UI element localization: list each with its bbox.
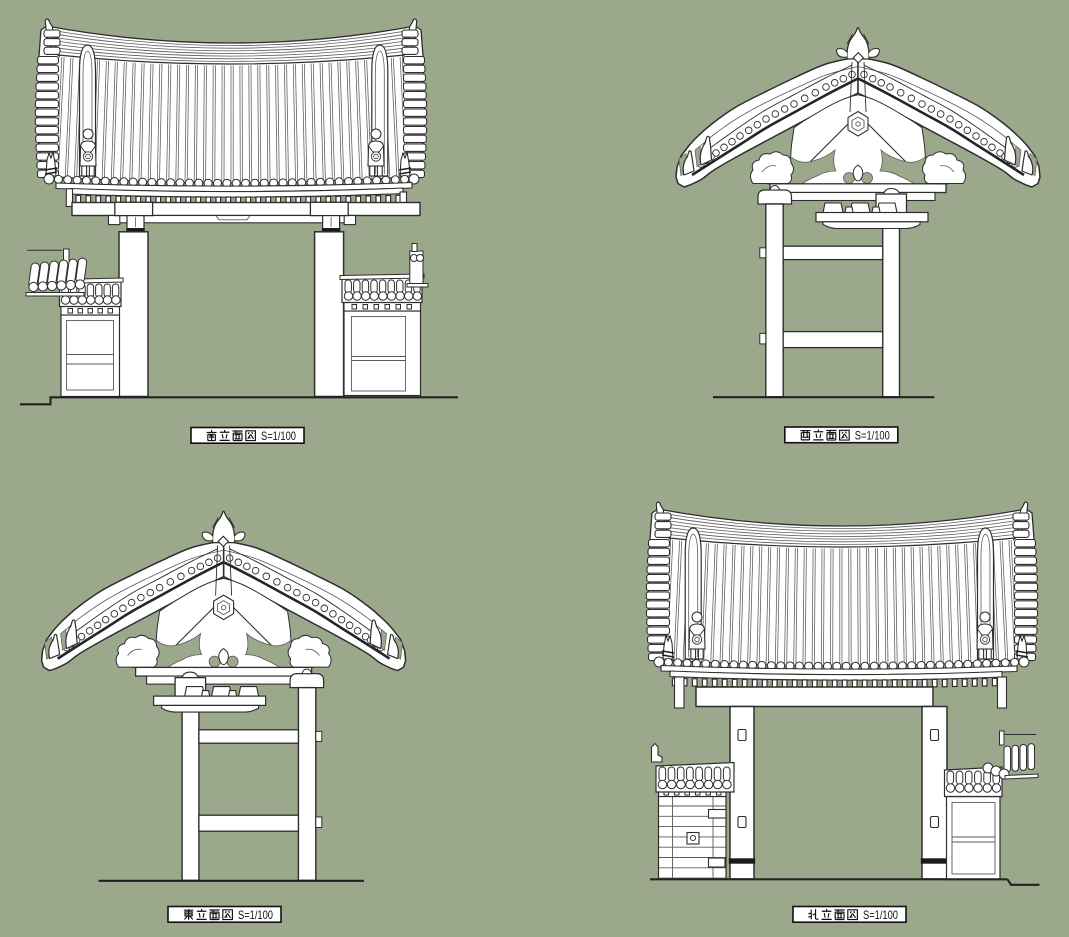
svg-text:S=1/100: S=1/100 [238, 909, 273, 922]
svg-text:S=1/100: S=1/100 [261, 430, 296, 443]
svg-text:S=1/100: S=1/100 [863, 909, 898, 922]
svg-text:S=1/100: S=1/100 [855, 429, 890, 442]
